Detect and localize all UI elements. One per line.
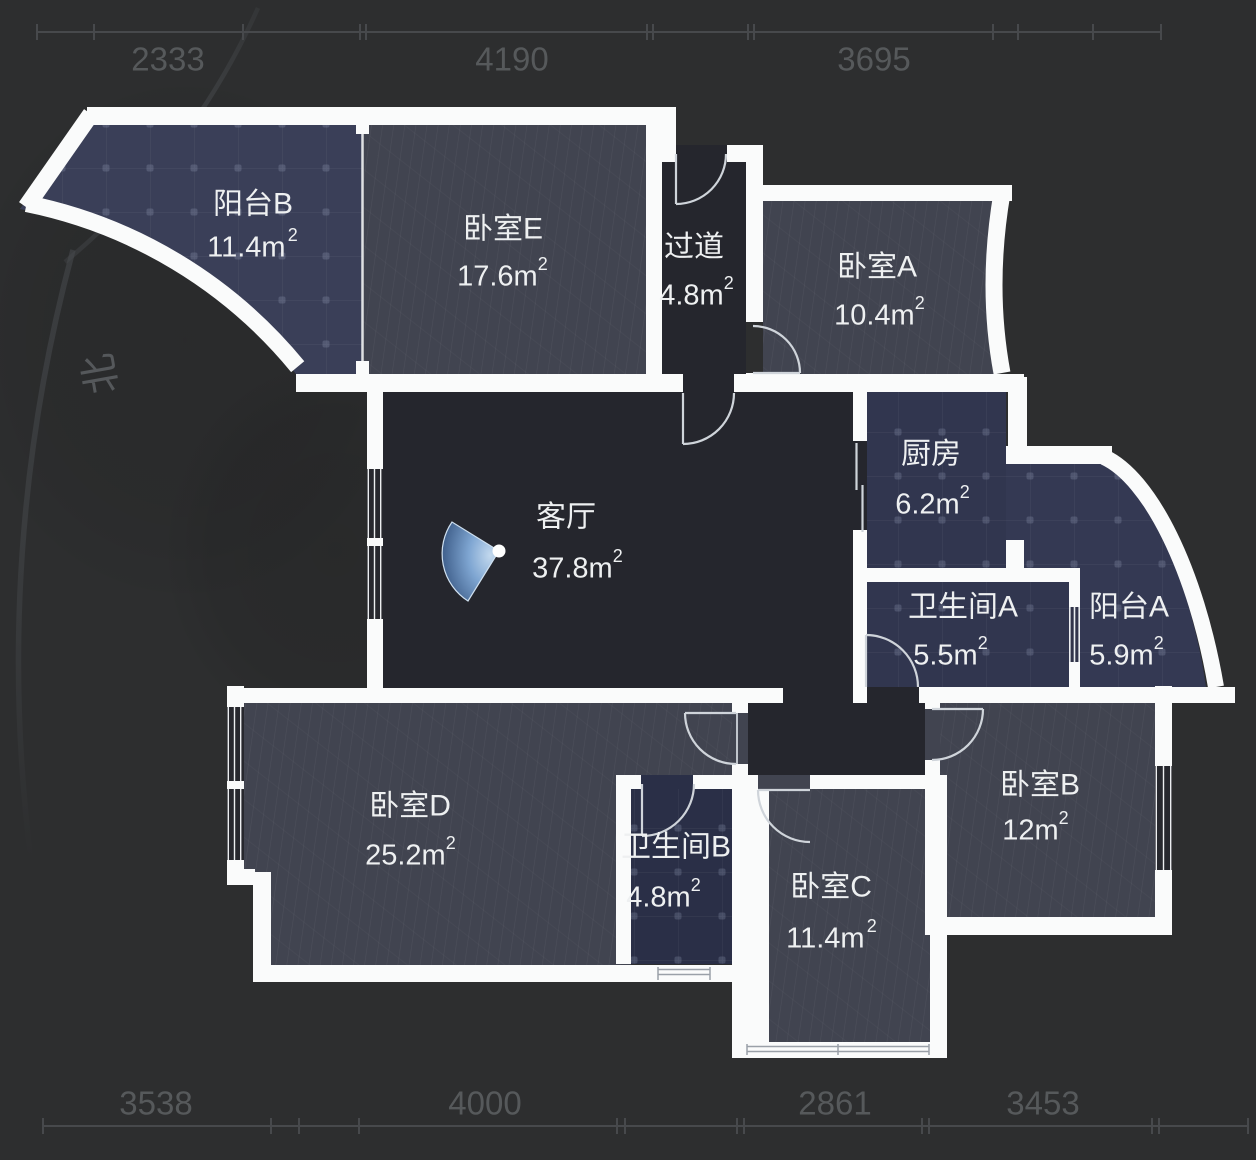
svg-text:3453: 3453 (1006, 1085, 1079, 1122)
svg-text:4.8m: 4.8m (659, 279, 723, 311)
svg-text:2: 2 (724, 273, 734, 293)
svg-text:2: 2 (613, 546, 623, 566)
svg-text:5.9m: 5.9m (1089, 639, 1153, 671)
svg-text:B: B (273, 188, 293, 221)
svg-text:2: 2 (288, 225, 298, 245)
svg-text:2: 2 (1154, 633, 1164, 653)
svg-text:B: B (1060, 769, 1080, 802)
svg-text:E: E (523, 213, 543, 246)
svg-text:2: 2 (691, 875, 701, 895)
svg-text:2: 2 (978, 633, 988, 653)
svg-text:2333: 2333 (131, 41, 204, 78)
svg-text:D: D (429, 790, 451, 823)
svg-text:2: 2 (538, 254, 548, 274)
svg-text:10.4m: 10.4m (834, 299, 915, 331)
svg-text:2: 2 (1059, 808, 1069, 828)
svg-text:6.2m: 6.2m (895, 488, 959, 520)
svg-text:17.6m: 17.6m (457, 260, 538, 292)
svg-text:5.5m: 5.5m (913, 639, 977, 671)
svg-text:11.4m: 11.4m (786, 922, 864, 954)
svg-text:4000: 4000 (448, 1085, 521, 1122)
svg-text:A: A (897, 251, 917, 284)
svg-text:C: C (850, 871, 872, 904)
svg-text:2: 2 (915, 293, 925, 313)
svg-text:A: A (1149, 591, 1169, 624)
svg-text:12m: 12m (1002, 814, 1058, 846)
svg-text:2: 2 (446, 833, 456, 853)
svg-text:2: 2 (867, 916, 877, 936)
svg-text:4.8m: 4.8m (626, 881, 690, 913)
svg-text:25.2m: 25.2m (365, 839, 446, 871)
svg-text:3695: 3695 (837, 41, 910, 78)
svg-text:2861: 2861 (798, 1085, 871, 1122)
svg-text:2: 2 (960, 482, 970, 502)
svg-text:11.4m: 11.4m (207, 231, 285, 263)
svg-text:A: A (998, 591, 1018, 624)
svg-text:37.8m: 37.8m (532, 552, 613, 584)
svg-text:3538: 3538 (119, 1085, 192, 1122)
svg-text:B: B (711, 831, 731, 864)
svg-text:4190: 4190 (475, 41, 548, 78)
